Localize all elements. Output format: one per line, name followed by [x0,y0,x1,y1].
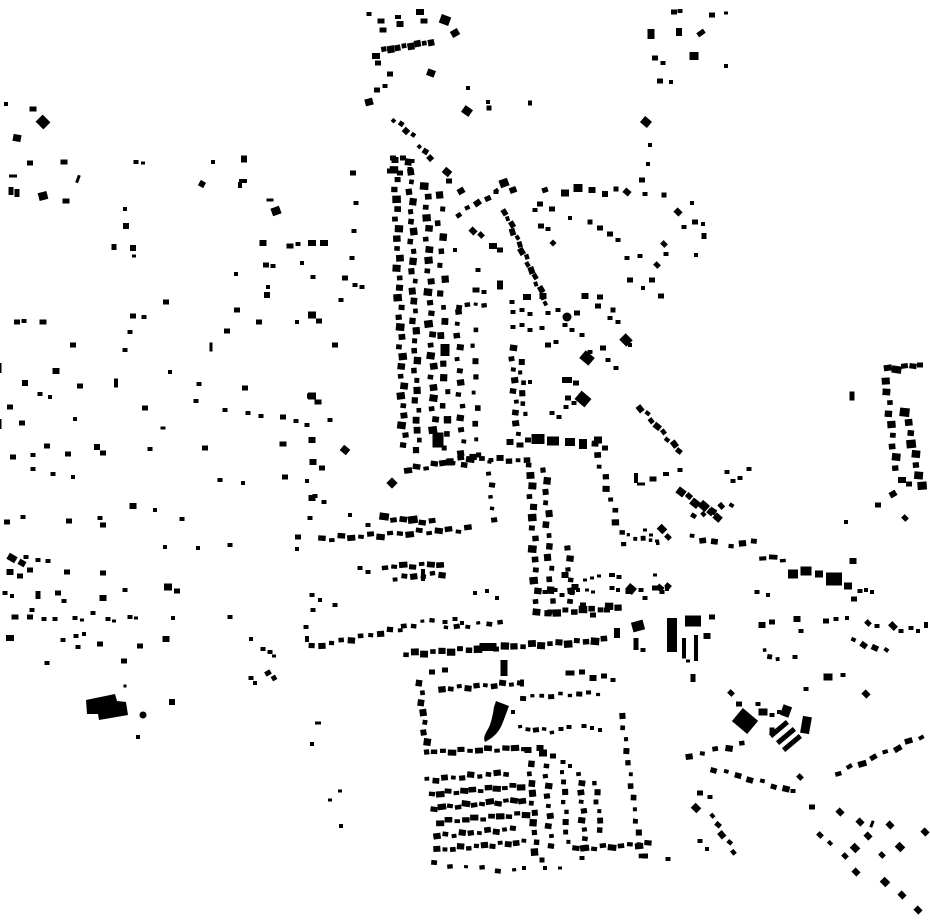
building [308,643,314,648]
building [442,445,447,450]
building [691,803,702,814]
building [249,676,254,680]
building [386,477,397,488]
building [380,28,387,33]
building [27,615,33,620]
building [433,433,444,448]
building [390,166,399,173]
building [611,308,616,313]
building [636,404,645,413]
building [308,393,316,400]
building [607,232,613,237]
building [484,644,491,650]
building [508,356,514,362]
building [663,472,669,476]
building [678,9,683,13]
building [423,738,431,746]
building [712,746,718,752]
building [709,13,715,18]
building [529,801,534,806]
building [827,840,833,846]
building [424,749,430,755]
building [428,342,434,347]
building [576,772,581,777]
building [759,709,768,716]
building [588,606,595,612]
building [460,621,464,625]
building [53,368,60,374]
building [348,637,356,644]
building [436,562,444,568]
building [310,742,314,746]
building [546,533,551,538]
building [142,406,148,411]
building [451,775,456,779]
building [387,45,395,53]
building [171,616,175,620]
building [515,235,521,241]
building [333,603,338,607]
building [685,492,693,500]
building [329,538,335,542]
building [477,831,482,835]
building [648,417,655,424]
building [130,503,137,509]
building [544,554,552,562]
building [625,256,630,260]
building [408,268,415,275]
building [524,457,531,463]
building [31,467,36,471]
building [499,680,507,687]
building [520,696,526,701]
building [295,547,299,551]
building [763,648,767,652]
building [308,312,316,319]
building [509,344,517,351]
building [455,322,460,326]
building [17,559,26,568]
building [517,443,524,448]
building [533,208,538,212]
building [887,421,896,429]
building [413,308,418,313]
building [614,628,620,638]
building [63,199,70,204]
building [591,846,597,851]
building [354,201,359,205]
building [525,438,531,443]
building [137,644,143,649]
building [714,821,722,829]
building [31,453,36,457]
building [294,419,299,423]
building [426,352,435,360]
building [460,404,466,409]
building [850,558,857,564]
building [271,675,278,682]
building [400,382,408,389]
building [399,516,407,523]
building [516,458,521,462]
building [381,46,387,52]
building [395,177,401,182]
building [746,776,754,784]
building [579,439,587,449]
building [241,156,247,163]
building [489,844,495,850]
large-building-west [86,694,128,720]
building [440,749,446,753]
building [196,546,200,550]
building [643,192,648,196]
building [478,789,484,793]
building [572,401,577,405]
building [511,325,516,329]
building [521,839,526,843]
building [218,478,223,482]
building [477,774,482,779]
building [622,187,631,196]
building [466,86,470,90]
building [685,616,701,627]
building [899,629,904,633]
building [528,101,532,106]
building [570,328,575,332]
building [266,285,270,289]
building [566,840,570,844]
building [835,807,844,816]
building [408,287,416,295]
building [454,819,460,823]
building [511,310,516,314]
building [882,749,888,754]
building [577,789,585,795]
building [409,564,417,570]
building [767,654,772,659]
building [398,374,404,379]
building [310,593,315,597]
building [447,649,455,656]
building [780,704,792,717]
building [486,471,491,476]
building [455,804,462,809]
building [561,779,566,784]
building [725,745,733,752]
building [256,320,262,325]
building [580,808,587,814]
building [726,839,733,846]
building [610,586,615,590]
building [650,477,657,482]
hook-building [484,701,509,742]
building [634,473,638,483]
building [498,841,503,845]
building [392,264,401,271]
building [438,686,446,693]
building [701,222,705,226]
building [579,606,588,613]
building [466,647,472,653]
building [439,459,448,466]
building [590,613,596,618]
building [366,523,371,527]
building [6,553,17,564]
building [153,508,157,512]
building [738,476,743,480]
building [401,573,407,579]
building [425,193,432,199]
building [461,439,466,444]
building [476,621,480,625]
building [485,785,493,791]
building [416,408,421,413]
building [533,599,539,604]
building [562,607,568,612]
building [432,416,440,423]
building [457,747,464,752]
building [400,156,406,161]
building [430,806,438,812]
building [429,792,435,797]
building [597,817,603,823]
building [350,256,355,260]
building [415,679,422,686]
building [342,276,348,281]
building [296,242,301,246]
building [520,323,525,327]
building [542,727,547,731]
building [161,427,166,430]
building [339,824,343,828]
building [533,567,539,572]
building [555,639,562,646]
building [400,442,407,448]
building [309,437,316,443]
building [396,323,405,331]
building [572,845,580,851]
building [914,471,923,479]
building [596,693,600,696]
building [420,651,428,658]
building [545,510,553,518]
building [728,502,734,508]
building [14,320,20,325]
building [562,377,572,383]
building [582,293,589,299]
building [405,531,414,538]
building [619,530,624,535]
building [576,588,580,592]
building [378,19,385,24]
building [578,817,586,824]
building [438,572,446,579]
building [479,802,485,807]
building [391,564,397,569]
building [627,278,633,283]
building [318,598,322,602]
building [675,447,683,455]
building [580,856,585,860]
building [709,615,715,620]
building [509,682,514,687]
building [673,207,682,216]
building [490,506,495,510]
building [759,622,766,628]
building [483,683,488,687]
building [510,643,518,650]
building [474,328,479,333]
building [377,631,385,638]
building [906,439,916,448]
building [464,865,468,868]
building [64,570,70,575]
building [512,420,520,427]
building [563,323,568,327]
building [425,246,433,253]
building [590,726,594,730]
building [503,772,509,777]
building [561,760,566,764]
building [652,586,658,591]
building [559,727,564,731]
building [769,620,775,625]
building [455,392,461,397]
building [809,805,815,810]
building [800,716,812,734]
building [280,442,287,447]
building [429,331,436,338]
building [547,843,554,849]
building [510,797,519,804]
building [578,780,586,787]
building [485,772,491,777]
building [527,771,532,776]
building [732,708,758,734]
building [855,817,864,826]
building [448,686,454,691]
building [441,275,449,283]
building [295,320,299,324]
building [580,333,585,337]
building [561,190,569,197]
building [484,745,492,751]
building [676,28,682,36]
building [443,625,448,629]
building [38,191,49,201]
building [457,455,464,461]
building [453,791,459,795]
building [597,575,601,578]
building [197,382,202,386]
building [408,218,414,224]
building [456,414,464,421]
building [372,53,380,59]
building [565,567,571,572]
building [367,12,372,16]
building [880,877,891,888]
building [80,619,84,622]
building [905,419,913,426]
building [400,403,406,408]
building [700,751,705,756]
building [770,728,775,735]
building [550,598,556,604]
building [433,846,440,852]
building [428,426,438,434]
building [669,80,673,84]
building [850,392,855,401]
building [913,905,922,914]
building [870,590,874,594]
building [364,98,374,107]
building [532,810,538,816]
building [482,290,487,294]
building [395,225,404,232]
building [21,515,26,519]
building [73,417,77,421]
building [734,772,742,779]
building [591,591,595,594]
building [46,559,51,563]
building [433,833,441,840]
building [537,285,546,294]
building [411,624,417,629]
building [453,333,460,339]
building [527,494,533,499]
building [398,628,403,632]
building [690,201,694,205]
building [723,769,729,774]
building [447,803,453,808]
building [427,374,433,379]
building [898,477,906,483]
building [660,428,667,435]
building [10,455,16,460]
building [280,415,286,420]
building [548,694,554,699]
building [471,802,478,808]
building [532,434,545,444]
building [502,745,510,751]
building [497,248,503,253]
building [445,389,450,394]
building [375,61,381,66]
building [12,134,21,142]
building [437,332,444,339]
building [561,800,565,804]
building [428,310,435,316]
building [523,294,531,300]
building [728,544,734,549]
building [664,533,672,541]
building [313,494,318,498]
building [396,344,402,349]
building [851,597,857,602]
building [392,196,401,204]
building [547,586,555,594]
building [411,348,417,354]
building [402,127,411,136]
building [682,656,686,659]
building [528,312,533,316]
building [401,43,407,49]
building [424,268,430,273]
building [532,535,539,541]
building [585,589,589,592]
building [449,461,455,466]
building [420,729,427,736]
